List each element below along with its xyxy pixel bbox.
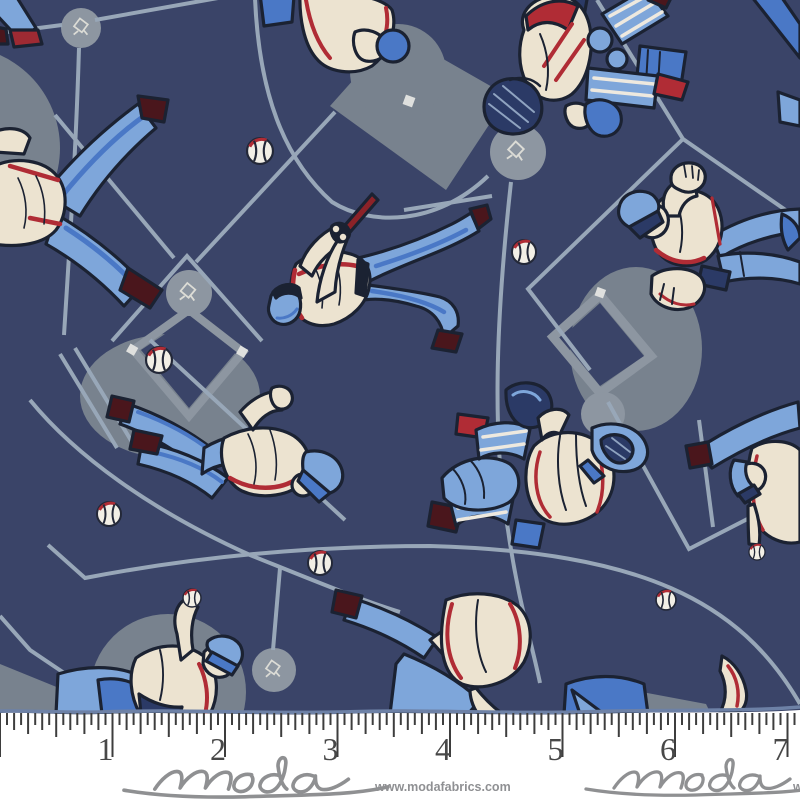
svg-text:5: 5	[548, 731, 564, 767]
svg-text:www.modafabrics.com: www.modafabrics.com	[792, 780, 800, 794]
svg-text:1: 1	[98, 731, 114, 767]
svg-text:4: 4	[435, 731, 451, 767]
svg-text:7: 7	[773, 731, 789, 767]
svg-text:2: 2	[210, 731, 226, 767]
svg-text:3: 3	[323, 731, 339, 767]
svg-text:6: 6	[660, 731, 676, 767]
svg-text:www.modafabrics.com: www.modafabrics.com	[374, 780, 511, 794]
